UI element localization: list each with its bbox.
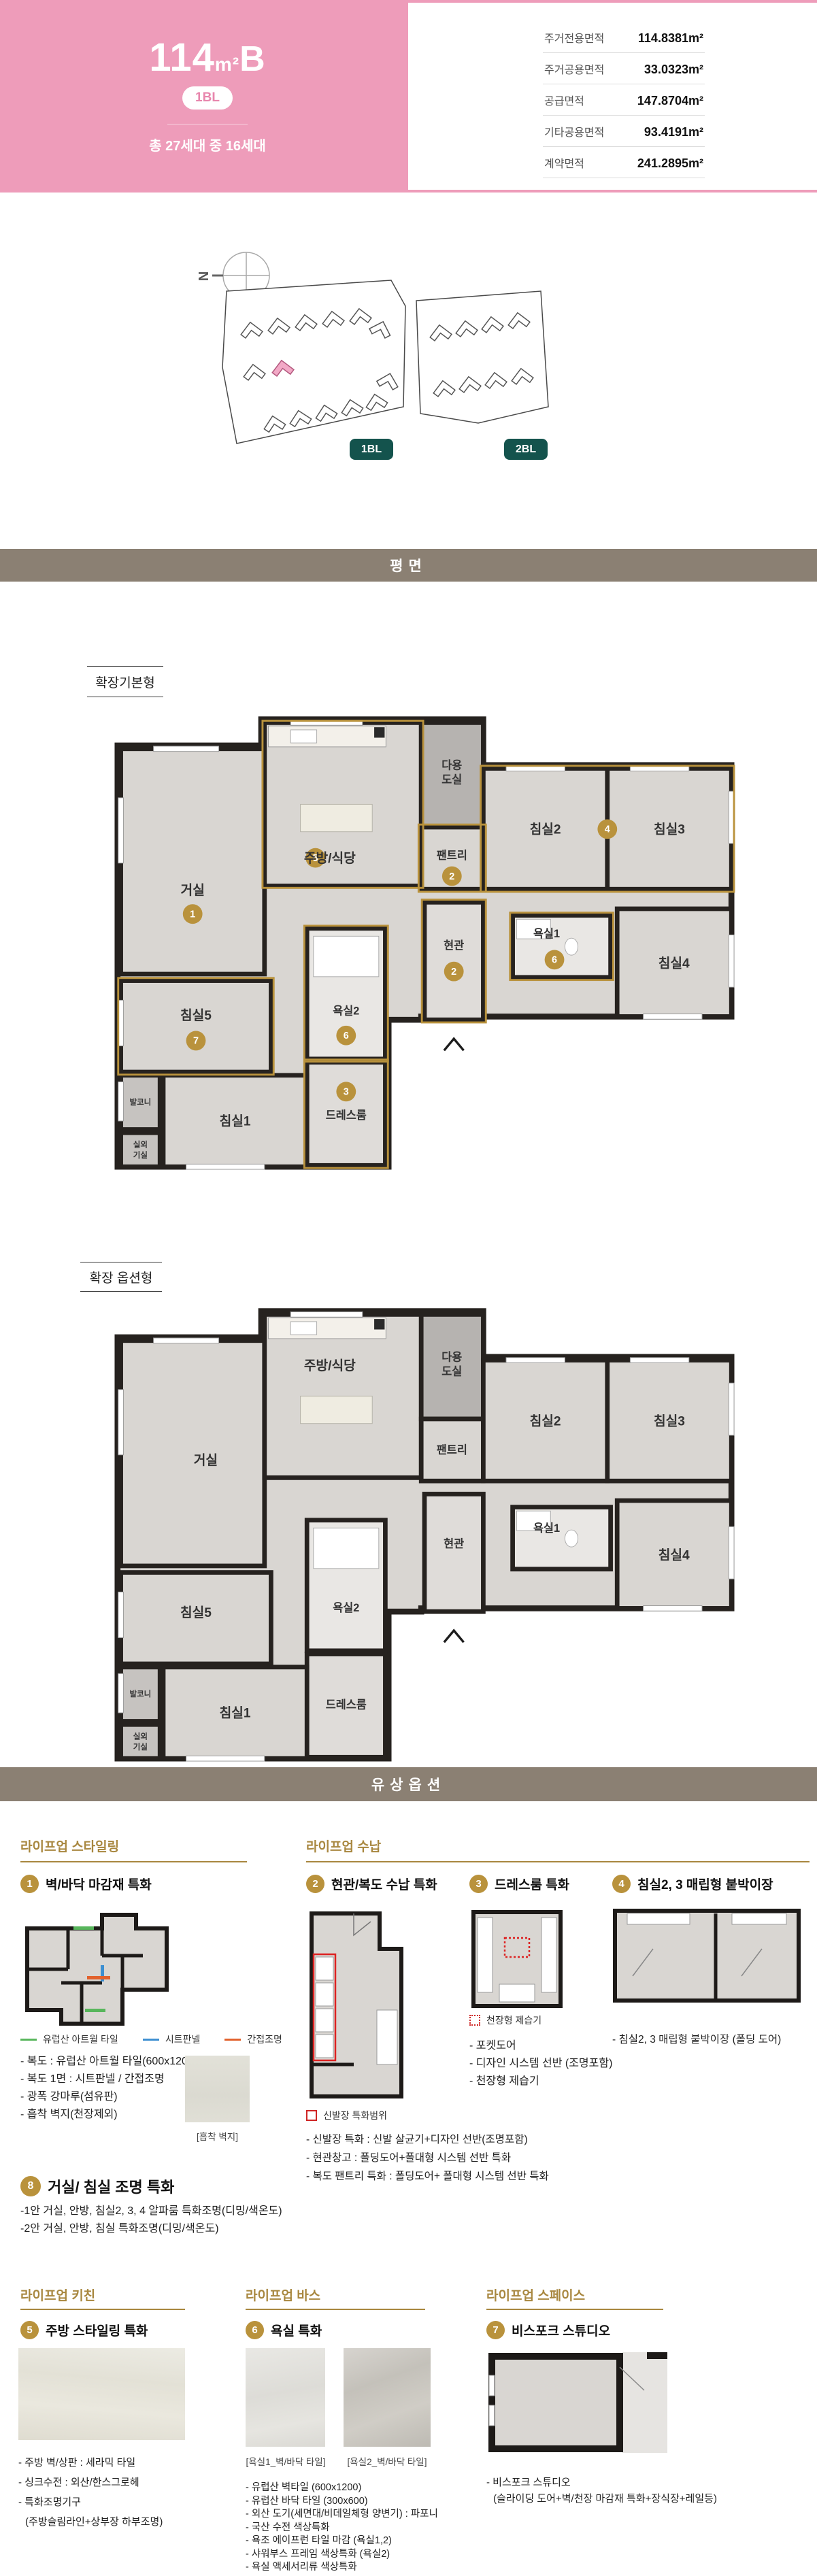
- marker-2b: 2: [451, 967, 456, 977]
- label-bed1: 침실1: [220, 1706, 251, 1721]
- bullet: - 복도 팬트리 특화 : 폴딩도어+ 폴대형 시스템 선반 특화: [306, 2167, 549, 2186]
- hero-divider: [167, 124, 248, 124]
- option5-bullets: - 주방 벽/상판 : 세라믹 타일 - 싱크수전 : 외산/한스그로헤 - 특…: [18, 2453, 163, 2532]
- option3-legend: 천장형 제습기: [469, 2013, 541, 2027]
- group-kitchen-underline: [20, 2309, 185, 2310]
- group-kitchen-heading: 라이프업 키친: [20, 2286, 95, 2304]
- site-block1-outline: [222, 280, 405, 444]
- block1-badge: 1BL: [350, 439, 393, 460]
- label-bath1: 욕실1: [533, 1522, 560, 1535]
- legend-red-dotted-square: [469, 2015, 480, 2026]
- option2-thumbnail: [306, 1908, 407, 2102]
- label-bed4: 침실4: [658, 956, 690, 971]
- bullet: - 흡착 벽지(천장제외): [20, 2106, 197, 2124]
- legend-blue-label: 시트판넬: [165, 2033, 201, 2046]
- marker-6b: 6: [344, 1031, 349, 1041]
- room-living: [121, 749, 265, 974]
- label-bed2: 침실2: [530, 822, 561, 837]
- bullet: - 국산 수전 색상특화: [246, 2522, 438, 2535]
- option7-heading: 7 비스포크 스튜디오: [486, 2321, 610, 2339]
- label-acroom-1: 실외: [133, 1731, 148, 1741]
- marker-4: 4: [605, 824, 610, 835]
- option2-legend: 신발장 특화범위: [306, 2109, 387, 2122]
- option3-bullets: - 포켓도어 - 디자인 시스템 선반 (조명포함) - 천장형 제습기: [469, 2037, 612, 2090]
- area-value: 114.8381m²: [638, 31, 703, 46]
- option1-thumbnail: [20, 1908, 173, 2029]
- label-utility-2: 도실: [441, 1366, 462, 1378]
- label-balcony: 발코니: [130, 1689, 152, 1699]
- label-bed3: 침실3: [654, 822, 685, 837]
- option8-title: 거실/ 침실 조명 특화: [48, 2175, 174, 2197]
- label-bed2: 침실2: [530, 1414, 561, 1429]
- label-bed3: 침실3: [654, 1414, 685, 1429]
- option4-number-badge: 4: [612, 1875, 631, 1893]
- entrance-arrow: [444, 1039, 464, 1050]
- label-entry: 현관: [444, 939, 464, 952]
- area-value: 33.0323m²: [644, 63, 703, 77]
- option2-number-badge: 2: [306, 1875, 324, 1893]
- option5-heading: 5 주방 스타일링 특화: [20, 2321, 148, 2339]
- option2-title: 현관/복도 수납 특화: [331, 1875, 437, 1893]
- bullet: - 샤워부스 프레임 색상특화 (욕실2): [246, 2548, 438, 2562]
- option5-number-badge: 5: [20, 2321, 39, 2339]
- label-dress: 드레스룸: [326, 1699, 367, 1711]
- area-card: 주거전용면적 114.8381m² 주거공용면적 33.0323m² 공급면적 …: [408, 3, 817, 190]
- label-dress: 드레스룸: [326, 1109, 367, 1122]
- option4-heading: 4 침실2, 3 매립형 붙박이장: [612, 1875, 773, 1893]
- area-value: 93.4191m²: [644, 125, 703, 139]
- section-bar-plan: 평면: [0, 549, 817, 582]
- table-row: 기타공용면적 93.4191m²: [543, 116, 705, 147]
- label-acroom-1: 실외: [133, 1139, 148, 1149]
- group-storage-heading: 라이프업 수납: [306, 1837, 381, 1855]
- option2-heading: 2 현관/복도 수납 특화: [306, 1875, 437, 1893]
- option1-legend: 유럽산 아트월 타일 시트판넬 간접조명: [20, 2033, 282, 2046]
- area-label: 기타공용면적: [544, 123, 604, 139]
- area-label: 공급면적: [544, 92, 584, 108]
- group-bath-heading: 라이프업 바스: [246, 2286, 320, 2304]
- option3-legend-label: 천장형 제습기: [486, 2013, 541, 2027]
- label-pantry: 팬트리: [437, 1444, 467, 1456]
- legend-green-swatch: [20, 2039, 37, 2041]
- section-bar-options: 유상옵션: [0, 1767, 817, 1801]
- marker-1: 1: [190, 909, 195, 920]
- option8-bullets: -1안 거실, 안방, 침실2, 3, 4 알파룸 특화조명(디밍/색온도) -…: [20, 2203, 282, 2238]
- option3-heading: 3 드레스룸 특화: [469, 1875, 569, 1893]
- label-bath1: 욕실1: [533, 928, 560, 940]
- option1-heading: 1 벽/바닥 마감재 특화: [20, 1875, 152, 1893]
- bullet: - 유럽산 벽타일 (600x1200): [246, 2481, 438, 2495]
- marker-3: 3: [344, 1087, 349, 1098]
- floorplan-basic: 거실 1 5 주방/식당 다용 도실 팬트리 2 침실2 4 침실3 현관 2 …: [41, 713, 776, 1170]
- area-value: 147.8704m²: [637, 94, 703, 108]
- marker-2: 2: [449, 871, 454, 882]
- option4-bullets: - 침실2, 3 매립형 붙박이장 (폴딩 도어): [612, 2030, 781, 2049]
- area-label: 주거전용면적: [544, 29, 604, 46]
- hero-left: 114m²B 1BL 총 27세대 중 16세대: [0, 0, 415, 193]
- entrance-arrow: [444, 1630, 464, 1642]
- area-label: 주거공용면적: [544, 61, 604, 77]
- label-entry: 현관: [444, 1537, 464, 1550]
- wallpaper-caption: [흡착 벽지]: [176, 2129, 259, 2143]
- label-acroom-2: 기실: [133, 1742, 148, 1752]
- household-count: 총 27세대 중 16세대: [149, 135, 266, 154]
- block-badge: 1BL: [182, 86, 233, 110]
- bullet: - 침실2, 3 매립형 붙박이장 (폴딩 도어): [612, 2030, 781, 2049]
- option1-number-badge: 1: [20, 1875, 39, 1893]
- unit-type-title: 114m²B: [149, 38, 265, 78]
- table-row: 공급면적 147.8704m²: [543, 84, 705, 116]
- hero-banner: 114m²B 1BL 총 27세대 중 16세대 주거전용면적 114.8381…: [0, 0, 817, 193]
- group-storage-underline: [306, 1861, 810, 1862]
- bullet: -1안 거실, 안방, 침실2, 3, 4 알파룸 특화조명(디밍/색온도): [20, 2203, 282, 2220]
- table-row: 주거공용면적 33.0323m²: [543, 53, 705, 84]
- label-living: 거실: [194, 1453, 218, 1468]
- site-plan: N: [0, 204, 817, 469]
- bullet: - 신발장 특화 : 신발 살균기+디자인 선반(조명포함): [306, 2130, 549, 2149]
- option1-title: 벽/바닥 마감재 특화: [46, 1875, 152, 1893]
- option8-heading: 8 거실/ 침실 조명 특화: [20, 2175, 174, 2197]
- label-bed5: 침실5: [180, 1008, 212, 1023]
- room-acroom: [121, 1133, 161, 1167]
- legend-orange-swatch: [224, 2039, 241, 2041]
- area-table: 주거전용면적 114.8381m² 주거공용면적 33.0323m² 공급면적 …: [543, 22, 705, 178]
- floorplan-page: 114m²B 1BL 총 27세대 중 16세대 주거전용면적 114.8381…: [0, 0, 817, 2576]
- bullet: (주방슬림라인+상부장 하부조명): [18, 2512, 163, 2532]
- option5-title: 주방 스타일링 특화: [46, 2321, 148, 2339]
- label-balcony: 발코니: [130, 1097, 152, 1107]
- option6-bullets: - 유럽산 벽타일 (600x1200) - 유럽산 바닥 타일 (300x60…: [246, 2481, 438, 2575]
- group-space-heading: 라이프업 스페이스: [486, 2286, 585, 2304]
- bullet: - 욕실 액세서리류 색상특화: [246, 2561, 438, 2575]
- label-bath2: 욕실2: [333, 1005, 359, 1018]
- label-utility-2: 도실: [441, 774, 462, 786]
- label-living: 거실: [181, 883, 205, 898]
- group-styling-underline: [20, 1861, 247, 1862]
- group-bath-underline: [246, 2309, 425, 2310]
- bullet: (슬라이딩 도어+벽/천장 마감재 특화+장식장+레일등): [486, 2491, 717, 2507]
- marker-6: 6: [552, 955, 557, 966]
- plan-option-label: 확장 옵션형: [80, 1262, 162, 1292]
- room-entry: [424, 902, 483, 1020]
- area-label: 계약면적: [544, 154, 584, 171]
- label-bed4: 침실4: [658, 1548, 690, 1562]
- label-utility-1: 다용: [441, 760, 462, 772]
- block2-badge: 2BL: [504, 439, 548, 460]
- label-acroom-2: 기실: [133, 1150, 148, 1160]
- option7-title: 비스포크 스튜디오: [512, 2321, 610, 2339]
- plan-basic-label: 확장기본형: [87, 666, 163, 697]
- title-number: 114: [149, 35, 215, 80]
- bullet: - 비스포크 스튜디오: [486, 2475, 717, 2491]
- kitchen-tile-swatch: [18, 2348, 185, 2440]
- table-row: 계약면적 241.2895m²: [543, 147, 705, 178]
- option8-number-badge: 8: [20, 2176, 41, 2196]
- bullet: - 현관창고 : 폴딩도어+폴대형 시스템 선반 특화: [306, 2149, 549, 2167]
- option6-number-badge: 6: [246, 2321, 264, 2339]
- group-space-underline: [486, 2309, 663, 2310]
- label-bed1: 침실1: [220, 1114, 251, 1129]
- site-block2-outline: [416, 291, 548, 423]
- option7-number-badge: 7: [486, 2321, 505, 2339]
- option3-thumbnail: [469, 1908, 565, 2010]
- bath2-swatch-caption: [욕실2_벽/바닥 타일]: [340, 2454, 434, 2468]
- legend-blue-swatch: [143, 2039, 159, 2041]
- option7-bullets: - 비스포크 스튜디오 (슬라이딩 도어+벽/천장 마감재 특화+장식장+레일등…: [486, 2475, 717, 2507]
- bullet: - 욕조 에이프런 타일 마감 (욕실1,2): [246, 2535, 438, 2548]
- option1-bullets: - 복도 : 유럽산 아트월 타일(600x1200) - 복도 1면 : 시트…: [20, 2053, 197, 2124]
- compass-north-label: N: [197, 271, 212, 281]
- bullet: - 광폭 강마루(섬유판): [20, 2088, 197, 2106]
- room-bed5: [121, 981, 271, 1072]
- bullet: - 복도 1면 : 시트판넬 / 간접조명: [20, 2071, 197, 2088]
- title-unit: m²: [215, 54, 239, 75]
- bullet: - 싱크수전 : 외산/한스그로헤: [18, 2473, 163, 2492]
- floorplan-option: 거실 주방/식당 다용 도실 팬트리 침실2 침실3 현관 욕실1 침실4 침실…: [41, 1305, 776, 1762]
- legend-red-square: [306, 2110, 317, 2121]
- bullet: - 천장형 제습기: [469, 2073, 612, 2090]
- label-bath2: 욕실2: [333, 1602, 359, 1614]
- marker-7: 7: [193, 1036, 199, 1047]
- bullet: -2안 거실, 안방, 침실 특화조명(디밍/색온도): [20, 2220, 282, 2238]
- option6-title: 욕실 특화: [271, 2321, 322, 2339]
- bullet: - 포켓도어: [469, 2037, 612, 2055]
- bullet: - 주방 벽/상판 : 세라믹 타일: [18, 2453, 163, 2473]
- bullet: - 특화조명기구: [18, 2492, 163, 2512]
- legend-orange-label: 간접조명: [247, 2033, 282, 2046]
- option7-thumbnail: [486, 2348, 671, 2457]
- option4-title: 침실2, 3 매립형 붙박이장: [637, 1875, 773, 1893]
- bath2-tile-swatch: [344, 2348, 431, 2447]
- title-suffix: B: [239, 39, 266, 79]
- label-utility-1: 다용: [441, 1352, 462, 1364]
- bath1-tile-swatch: [246, 2348, 325, 2447]
- bullet: - 디자인 시스템 선반 (조명포함): [469, 2055, 612, 2073]
- option2-bullets: - 신발장 특화 : 신발 살균기+디자인 선반(조명포함) - 현관창고 : …: [306, 2130, 549, 2186]
- bullet: - 복도 : 유럽산 아트월 타일(600x1200): [20, 2053, 197, 2071]
- option2-legend-label: 신발장 특화범위: [323, 2109, 387, 2122]
- label-pantry: 팬트리: [437, 850, 467, 862]
- table-row: 주거전용면적 114.8381m²: [543, 22, 705, 53]
- bullet: - 유럽산 바닥 타일 (300x600): [246, 2495, 438, 2509]
- bath1-swatch-caption: [욕실1_벽/바닥 타일]: [239, 2454, 332, 2468]
- area-value: 241.2895m²: [637, 156, 703, 171]
- legend-green-label: 유럽산 아트월 타일: [43, 2033, 118, 2046]
- option6-heading: 6 욕실 특화: [246, 2321, 322, 2339]
- label-kitchen: 주방/식당: [304, 851, 356, 866]
- option4-thumbnail: [612, 1908, 801, 2003]
- option3-number-badge: 3: [469, 1875, 488, 1893]
- wallpaper-swatch: [185, 2056, 250, 2122]
- label-kitchen: 주방/식당: [304, 1358, 356, 1373]
- bullet: - 외산 도기(세면대/비데일체형 양변기) : 파포니: [246, 2508, 438, 2522]
- label-bed5: 침실5: [180, 1605, 212, 1620]
- group-styling-heading: 라이프업 스타일링: [20, 1837, 119, 1855]
- option3-title: 드레스룸 특화: [495, 1875, 569, 1893]
